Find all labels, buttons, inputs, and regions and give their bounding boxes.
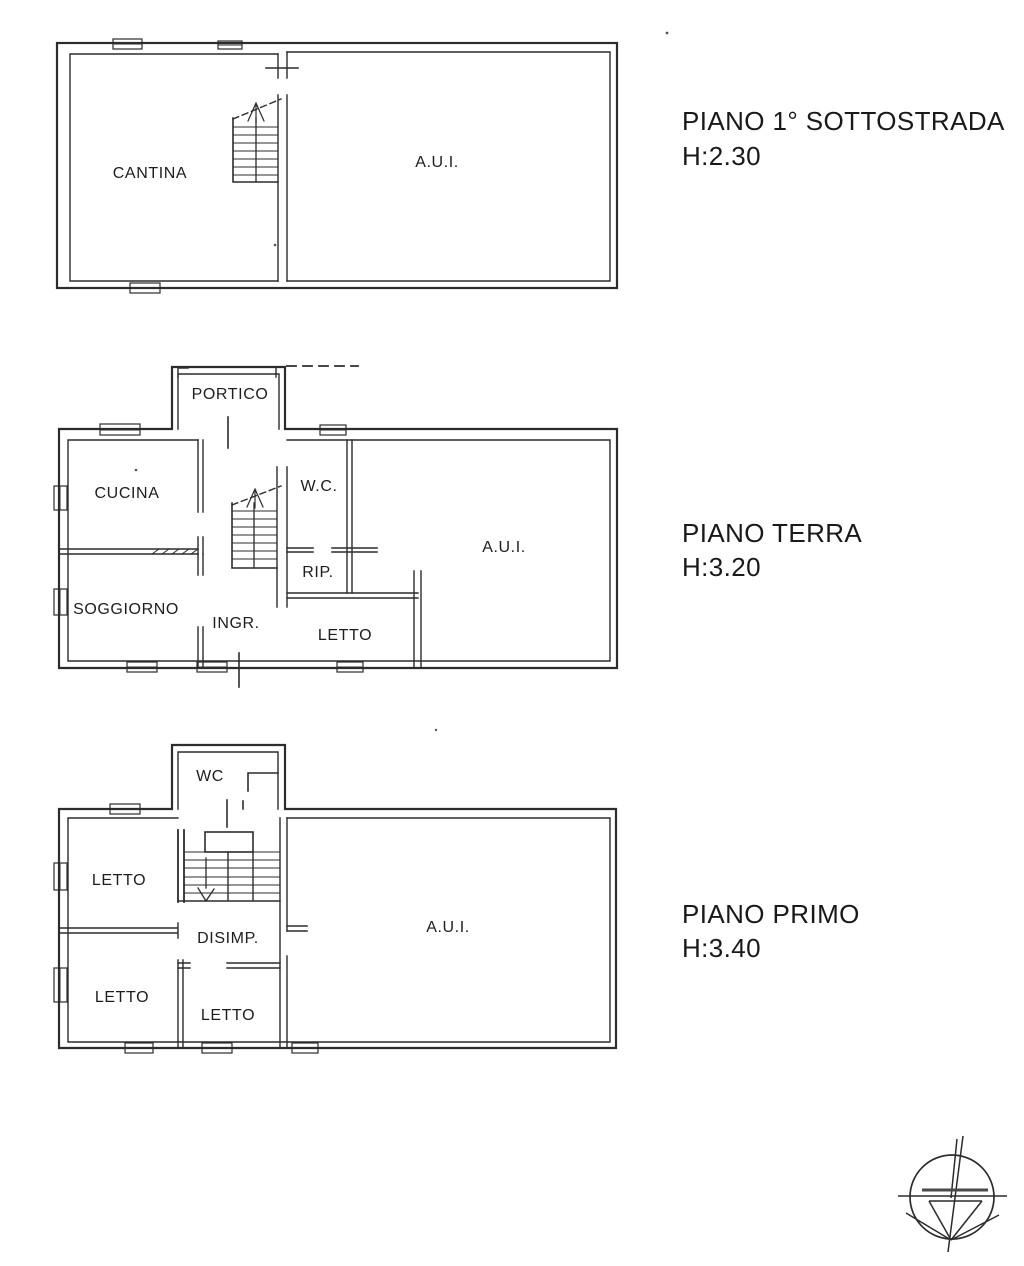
room-label-cantina: CANTINA [113, 165, 187, 183]
room-label-portico: PORTICO [192, 386, 269, 404]
room-label-letto-terra: LETTO [318, 627, 372, 645]
room-label-aui-terra: A.U.I. [482, 539, 526, 557]
room-label-letto-1: LETTO [92, 872, 146, 890]
floorplan-sheet: CANTINA A.U.I. PORTICO CUCINA W.C. SOGGI… [0, 0, 1024, 1266]
floor-height-sottostrada: H:2.30 [682, 141, 761, 172]
room-label-letto-2: LETTO [95, 989, 149, 1007]
room-label-aui-sottostrada: A.U.I. [415, 154, 459, 172]
floor-title-primo: PIANO PRIMO [682, 899, 860, 930]
room-label-wc-primo: WC [196, 768, 224, 786]
floor-height-primo: H:3.40 [682, 933, 761, 964]
room-label-cucina: CUCINA [95, 485, 160, 503]
compass-rose-icon [898, 1136, 1007, 1252]
room-label-aui-primo: A.U.I. [426, 919, 470, 937]
floor-height-terra: H:3.20 [682, 552, 761, 583]
stairs-down-icon [233, 99, 281, 182]
floor-title-sottostrada: PIANO 1° SOTTOSTRADA [682, 106, 1005, 137]
room-label-disimp: DISIMP. [197, 930, 259, 948]
stairs-up-icon [232, 486, 281, 568]
room-label-ingr: INGR. [212, 615, 259, 633]
room-label-soggiorno: SOGGIORNO [73, 601, 179, 619]
room-label-rip: RIP. [302, 564, 333, 582]
floorplan-drawing [0, 0, 1024, 1266]
floor-title-terra: PIANO TERRA [682, 518, 862, 549]
room-label-letto-3: LETTO [201, 1007, 255, 1025]
stairs-down-icon [178, 830, 280, 902]
room-label-wc-terra: W.C. [300, 478, 337, 496]
window-symbols [54, 424, 363, 672]
